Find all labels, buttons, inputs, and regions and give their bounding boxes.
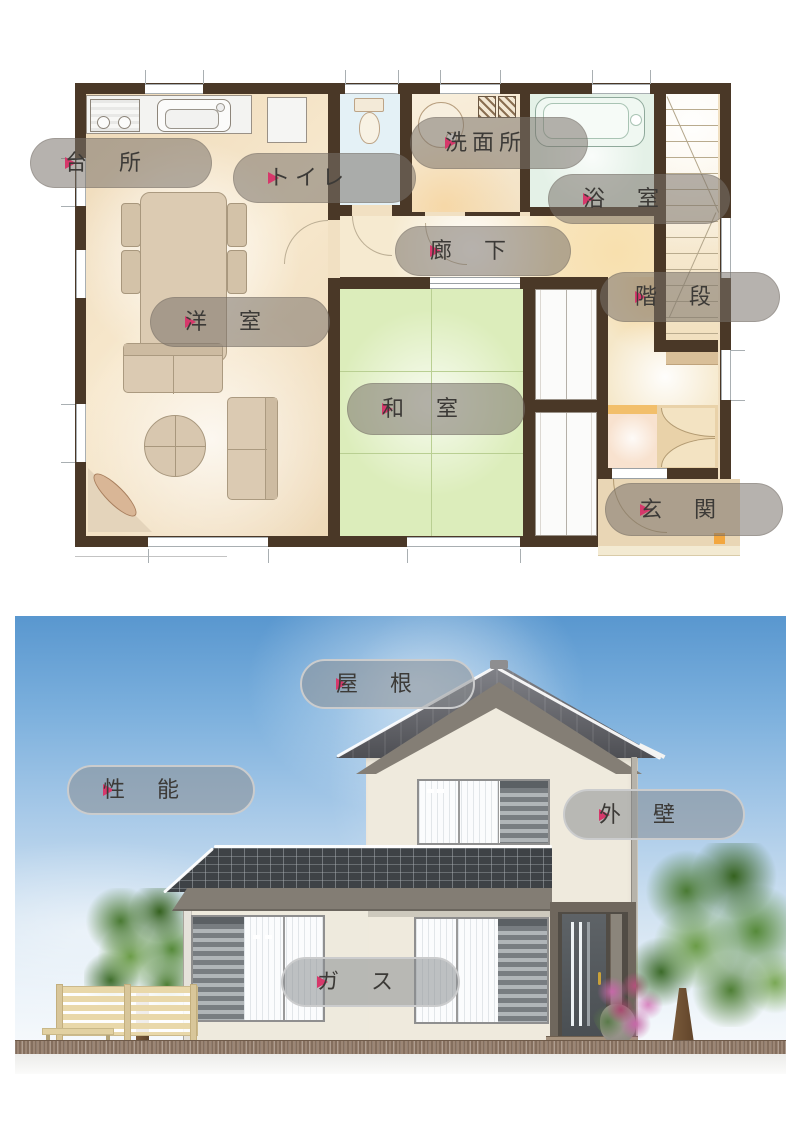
dimension-tick xyxy=(148,549,149,563)
dimension-tick xyxy=(592,70,593,84)
dimension-tick xyxy=(268,549,269,563)
stove-burner xyxy=(118,116,131,129)
toilet-bowl xyxy=(359,112,380,144)
label-text: ガ ス xyxy=(317,971,420,993)
washer-pan xyxy=(478,96,496,118)
interior-wall xyxy=(535,400,597,412)
dining-chair xyxy=(121,203,141,247)
window-opening xyxy=(76,250,86,298)
toilet-tank xyxy=(354,98,384,112)
label-text: 洗面所 xyxy=(445,132,548,154)
washer-pan xyxy=(498,96,516,118)
guide-line xyxy=(75,556,227,557)
window-opening xyxy=(407,537,520,547)
dimension-tick xyxy=(731,350,745,351)
interior-wall xyxy=(654,340,718,352)
label-text: 洋 室 xyxy=(185,311,288,333)
label-text: 和 室 xyxy=(382,398,485,420)
window-glint xyxy=(427,789,434,793)
label-text: 浴 室 xyxy=(583,188,686,210)
door-glass-strip xyxy=(571,922,574,1026)
window-opening xyxy=(721,218,731,278)
roof-ridge-cap xyxy=(490,660,508,669)
window-glint xyxy=(253,935,260,939)
dining-chair xyxy=(227,250,247,294)
dimension-tick xyxy=(407,549,408,563)
entrance-step-edge xyxy=(608,405,657,414)
label-text: 屋 根 xyxy=(336,673,439,695)
label-western-room[interactable]: 洋 室 xyxy=(150,297,330,347)
interior-wall xyxy=(523,289,535,536)
fence-post xyxy=(124,984,131,1042)
entrance-porch-step xyxy=(598,546,740,556)
label-exterior-wall[interactable]: 外 壁 xyxy=(563,789,745,840)
tatami-mat-line xyxy=(340,453,523,454)
dimension-tick xyxy=(203,70,204,84)
dimension-tick xyxy=(520,549,521,563)
label-stairs[interactable]: 階 段 xyxy=(600,272,780,322)
interior-wall xyxy=(328,278,340,536)
closet xyxy=(535,289,597,400)
bathtub-drain xyxy=(630,114,642,126)
label-hallway[interactable]: 廊 下 xyxy=(395,226,571,276)
sofa xyxy=(123,343,223,393)
window-glint xyxy=(437,789,444,793)
fence-post xyxy=(190,984,197,1042)
dimension-tick xyxy=(145,70,146,84)
door-glass-strip xyxy=(579,922,582,1026)
window-glint xyxy=(265,935,272,939)
label-text: 階 段 xyxy=(635,286,738,308)
wing-roof-tiles xyxy=(166,848,552,892)
window-opening xyxy=(145,84,203,94)
interior-wall xyxy=(598,468,612,479)
label-washroom[interactable]: 洗面所 xyxy=(410,117,588,169)
label-japanese-room[interactable]: 和 室 xyxy=(347,383,525,435)
kitchen-island xyxy=(267,97,307,143)
kitchen-counter xyxy=(86,95,252,134)
label-text: 玄 関 xyxy=(640,499,743,521)
dimension-tick xyxy=(440,70,441,84)
entrance-hall xyxy=(608,414,657,468)
window-opening xyxy=(148,537,268,547)
dimension-tick xyxy=(61,404,75,405)
stove-burner xyxy=(97,116,110,129)
label-kitchen[interactable]: 台 所 xyxy=(30,138,212,188)
dimension-tick xyxy=(345,70,346,84)
dimension-tick xyxy=(61,206,75,207)
label-text: 性 能 xyxy=(103,779,206,801)
window-shutter xyxy=(498,919,547,1022)
label-roof[interactable]: 屋 根 xyxy=(300,659,475,709)
window-opening xyxy=(440,84,500,94)
label-text: 外 壁 xyxy=(599,804,702,826)
entrance-door-opening xyxy=(612,468,667,479)
label-text: トイレ xyxy=(268,167,371,189)
second-floor-window xyxy=(417,779,550,845)
dimension-tick xyxy=(398,70,399,84)
dimension-tick xyxy=(650,70,651,84)
shoe-cabinet xyxy=(657,405,718,468)
ground-strip xyxy=(15,1040,786,1054)
wing-roof-fascia xyxy=(172,888,552,911)
cabinet-door-swing xyxy=(661,438,715,467)
garden-bench xyxy=(42,1028,114,1035)
stove xyxy=(90,99,140,132)
dining-chair xyxy=(227,203,247,247)
dining-chair xyxy=(121,250,141,294)
stair-landing-step xyxy=(666,352,718,365)
door-glass-strip xyxy=(587,922,590,1026)
cabinet-door-swing xyxy=(661,408,715,437)
kitchen-sink xyxy=(157,99,231,132)
interior-wall xyxy=(667,468,718,479)
label-entrance[interactable]: 玄 関 xyxy=(605,483,783,536)
closet xyxy=(535,412,597,536)
interior-wall xyxy=(340,205,352,216)
round-table xyxy=(144,415,206,477)
tree-right-foliage xyxy=(636,843,786,1027)
window-mullion xyxy=(458,781,460,843)
page: 台 所 トイレ 洗面所 浴 室 廊 下 階 段 洋 室 和 室 玄 関 屋 根 … xyxy=(0,0,800,1123)
window-opening xyxy=(721,350,731,400)
wing-roof-ridge-highlight xyxy=(214,845,552,848)
tatami-mat-line xyxy=(340,371,523,372)
window-opening xyxy=(592,84,650,94)
window-shutter xyxy=(500,781,548,843)
interior-wall xyxy=(340,277,430,289)
interior-wall xyxy=(520,277,608,289)
sink-basin xyxy=(165,109,219,129)
label-text: 台 所 xyxy=(65,152,168,174)
window-opening xyxy=(76,404,86,462)
window-opening xyxy=(345,84,398,94)
label-performance[interactable]: 性 能 xyxy=(67,765,255,815)
dimension-tick xyxy=(500,70,501,84)
sofa xyxy=(227,397,278,500)
sliding-door xyxy=(430,277,520,289)
dimension-tick xyxy=(731,400,745,401)
base-shadow-strip xyxy=(15,1054,786,1074)
label-text: 廊 下 xyxy=(430,240,533,262)
faucet xyxy=(216,103,225,112)
label-gas[interactable]: ガ ス xyxy=(281,957,460,1007)
label-bathroom[interactable]: 浴 室 xyxy=(548,174,730,224)
window-shutter xyxy=(193,917,244,1020)
dimension-tick xyxy=(61,462,75,463)
label-toilet[interactable]: トイレ xyxy=(233,153,416,203)
